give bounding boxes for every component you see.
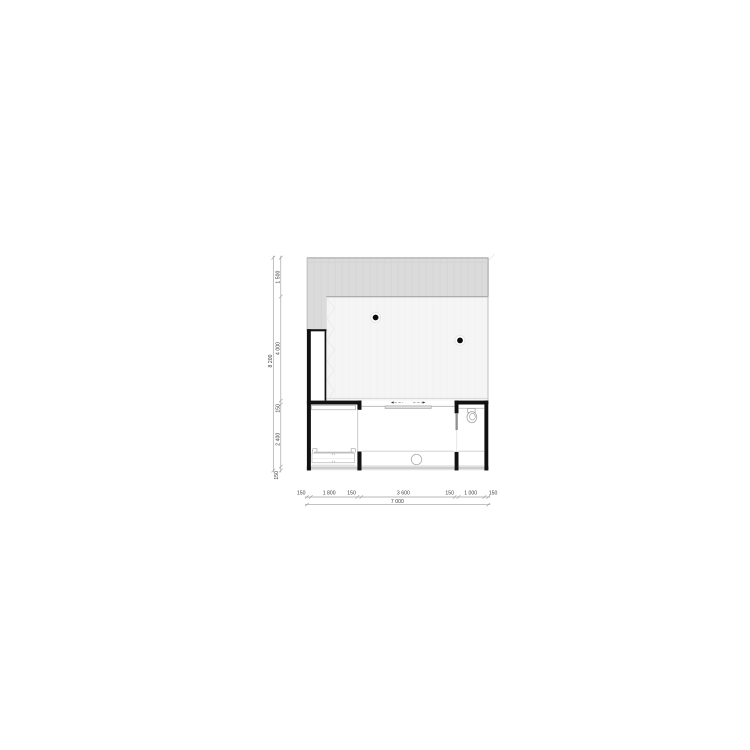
- svg-text:2 400: 2 400: [276, 433, 282, 446]
- svg-text:150: 150: [489, 491, 498, 497]
- svg-text:7 000: 7 000: [391, 499, 404, 505]
- svg-text:150: 150: [445, 491, 454, 497]
- svg-text:1 500: 1 500: [276, 270, 282, 283]
- svg-text:1 000: 1 000: [464, 491, 477, 497]
- svg-text:150: 150: [276, 404, 282, 413]
- svg-text:3 600: 3 600: [397, 491, 410, 497]
- svg-text:150: 150: [274, 471, 280, 480]
- svg-text:150: 150: [297, 491, 306, 497]
- svg-text:4 000: 4 000: [276, 342, 282, 355]
- svg-text:1 800: 1 800: [323, 491, 336, 497]
- svg-text:8 200: 8 200: [268, 354, 274, 367]
- svg-text:150: 150: [347, 491, 356, 497]
